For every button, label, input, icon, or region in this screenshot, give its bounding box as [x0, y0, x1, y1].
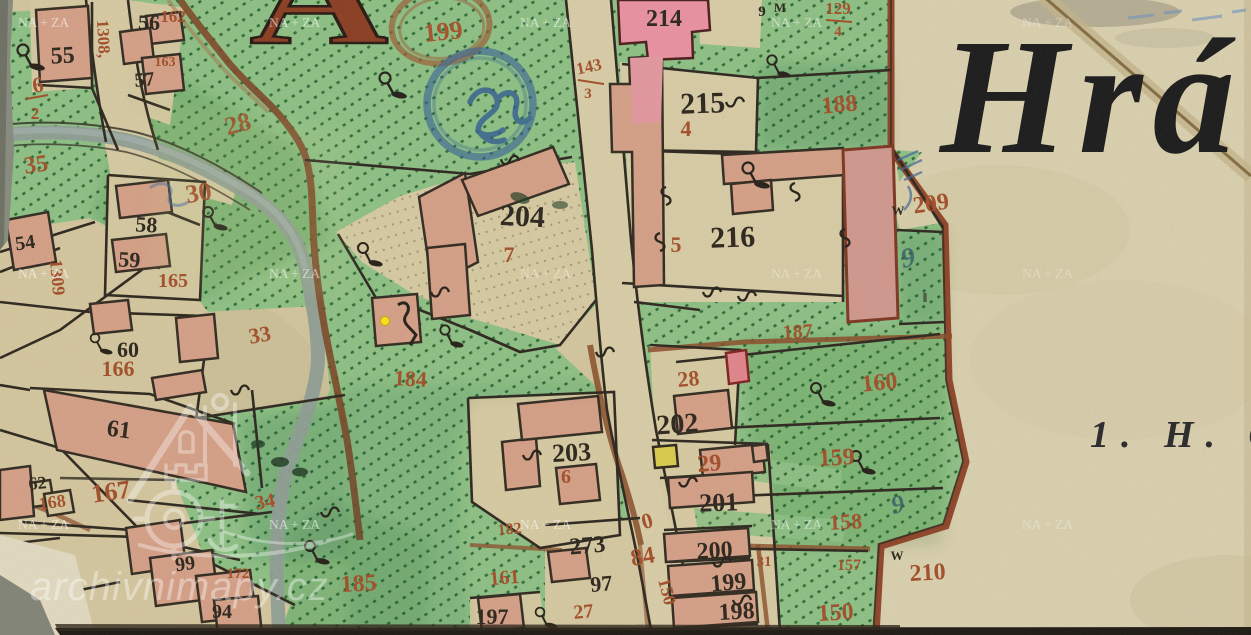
- svg-text:NA + ZA: NA + ZA: [1022, 266, 1073, 281]
- svg-text:NA + ZA: NA + ZA: [269, 15, 320, 30]
- svg-text:NA + ZA: NA + ZA: [771, 517, 822, 532]
- svg-text:NA + ZA: NA + ZA: [520, 517, 571, 532]
- svg-text:NA + ZA: NA + ZA: [520, 266, 571, 281]
- svg-text:NA + ZA: NA + ZA: [269, 517, 320, 532]
- svg-text:NA + ZA: NA + ZA: [18, 266, 69, 281]
- svg-text:NA + ZA: NA + ZA: [1022, 15, 1073, 30]
- svg-text:NA + ZA: NA + ZA: [1022, 517, 1073, 532]
- svg-text:NA + ZA: NA + ZA: [18, 15, 69, 30]
- svg-text:NA + ZA: NA + ZA: [771, 266, 822, 281]
- svg-text:NA + ZA: NA + ZA: [269, 266, 320, 281]
- svg-text:NA + ZA: NA + ZA: [18, 517, 69, 532]
- svg-text:archivnimapy.cz: archivnimapy.cz: [30, 565, 329, 609]
- svg-text:NA + ZA: NA + ZA: [520, 15, 571, 30]
- svg-text:NA + ZA: NA + ZA: [771, 15, 822, 30]
